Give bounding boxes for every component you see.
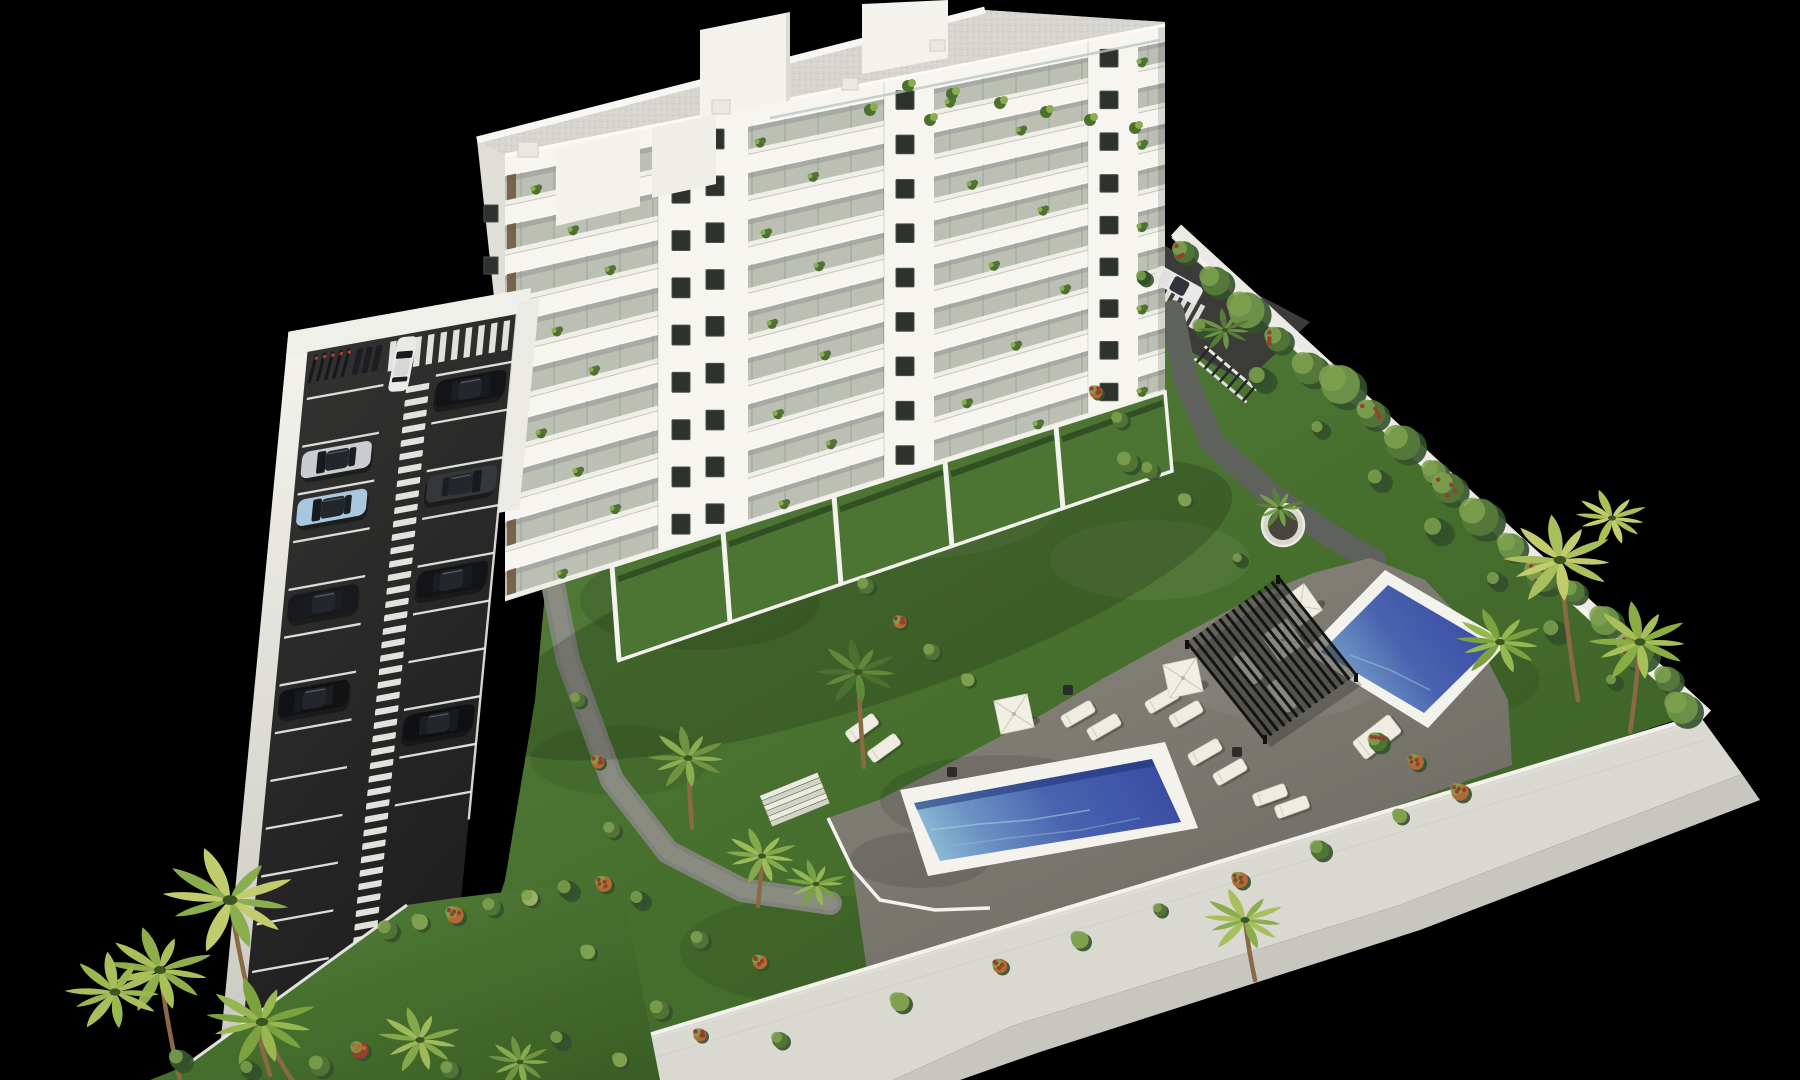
facade-window [896,135,914,154]
balcony-plant [1142,140,1148,146]
roof-vent [930,40,945,51]
facade-window [672,372,690,392]
balcony-plant [604,267,609,272]
side-table [1063,685,1073,695]
bush-flower [1409,760,1413,764]
bush [1310,840,1323,853]
balcony-plant [535,430,540,435]
balcony-plant [1142,387,1148,393]
palm-crown [853,669,862,675]
balcony-plant [594,365,600,371]
facade-window [1100,216,1118,234]
balcony-wood-wall [507,519,516,546]
bush [1319,364,1346,391]
balcony-plant [813,172,819,178]
bush-flower [1381,736,1385,740]
bush-flower [457,911,461,915]
balcony-plant [1142,222,1148,228]
bush-flower [591,756,595,760]
balcony-plant [1142,304,1148,310]
facade-window [896,179,914,198]
balcony-plant [562,569,568,575]
bush [690,931,702,943]
balcony-plant [1043,205,1049,211]
balcony-plant [572,468,577,473]
bush [1487,572,1499,584]
bush-flower [1373,735,1377,739]
roof-plant [870,103,878,111]
facade-window [896,313,914,332]
balcony-plant [772,411,777,416]
bush [1153,903,1162,912]
end-wall-window [484,257,498,274]
bush [240,1061,252,1073]
roof-penthouse [652,114,716,198]
balcony-plant [760,137,766,143]
facade-window [896,446,914,465]
balcony-plant [972,180,978,186]
bush [550,1031,562,1043]
bush [603,822,614,833]
balcony-wood-wall [507,174,516,201]
bush-flower [1267,336,1271,340]
balcony-plant [1037,207,1042,212]
palm-crown [684,755,693,761]
bush [580,945,590,955]
bush-flower [1377,736,1381,740]
balcony-plant [1010,342,1015,347]
bush-flower [1408,755,1412,759]
facade-window [1100,175,1118,193]
bush [612,1053,622,1063]
bush [1172,241,1187,256]
bush [1311,421,1322,432]
bush-flower [1174,244,1178,248]
bush-flower [1238,876,1242,880]
bush [771,1032,782,1043]
facade-window [706,410,724,430]
bush [1497,533,1515,551]
bush-flower [1375,411,1379,415]
balcony-plant [541,428,547,434]
palm-crown [154,966,166,974]
balcony-plant [578,467,584,473]
facade-window [706,363,724,383]
palm-crown [1277,506,1283,510]
balcony-plant [1136,388,1141,393]
pergola-post [1354,673,1358,682]
bush [1070,931,1082,943]
balcony-plant [961,400,966,405]
balcony-plant [1065,284,1071,290]
bush-flower [757,962,761,966]
bush-flower [352,1043,356,1047]
bush [309,1056,323,1070]
bush-flower [1449,483,1453,487]
balcony-plant [778,500,783,505]
balcony-plant [754,139,759,144]
balcony-plant [1038,419,1044,425]
bush-flower [1462,788,1466,792]
bush [961,673,970,682]
bush [521,890,532,901]
bush-flower [754,957,758,961]
bush [570,693,580,703]
bush-flower [597,760,601,764]
bush-flower [1267,330,1271,334]
bush-flower [1369,735,1373,739]
bush-flower [597,882,601,886]
palm-crown [516,1060,523,1065]
bush [1654,666,1671,683]
balcony-plant [825,350,831,356]
bush-flower [1360,404,1364,408]
roof-plant [1046,105,1054,113]
balcony-plant [615,504,621,510]
bush [1199,266,1219,286]
bush [1422,460,1438,476]
balcony-plant [588,367,593,372]
balcony-plant [760,230,765,235]
facade-window [672,514,690,534]
palm-crown [1634,638,1645,645]
bush-flower [1414,758,1418,762]
pergola-post [1185,640,1189,649]
bush-flower [997,966,1001,970]
bush [1111,412,1122,423]
palm-crown [1495,639,1505,645]
bush-flower [693,1029,697,1033]
facade-window [1100,91,1118,109]
facade-window [672,420,690,440]
balcony-plant [944,99,949,104]
bush [650,1000,663,1013]
facade-window [896,401,914,420]
palm-crown [758,853,766,858]
render-canvas [0,0,1800,1080]
roof-plant [930,113,938,121]
balcony-plant [807,173,812,178]
bush-flower [596,877,600,881]
balcony-plant [766,320,771,325]
bush-flower [899,620,903,624]
bush [1424,518,1441,535]
bush-flower [1377,415,1381,419]
bush-flower [602,880,606,884]
palm-crown [1554,556,1566,564]
bush [482,898,494,910]
bush-flower [893,616,897,620]
facade-window [706,270,724,290]
facade-window [1100,258,1118,276]
bush [1249,367,1265,383]
facade-window [1100,342,1118,360]
pergola-post [1276,575,1280,584]
facade-window [896,224,914,243]
balcony-plant [813,263,818,268]
pergola-post [1263,735,1267,744]
balcony-plant [567,227,572,232]
bush-flower [1095,390,1099,394]
bush [890,992,903,1005]
balcony-plant [1059,286,1064,291]
bush [630,891,642,903]
roof-plant [908,79,916,87]
balcony-plant [573,225,579,231]
facade-window [1100,133,1118,151]
bush-flower [699,1033,703,1037]
side-table [1232,747,1242,757]
bush [1233,553,1242,562]
bush [1432,472,1453,493]
balcony-plant [1032,421,1037,426]
bush [1264,327,1281,344]
bush-flower [598,757,602,761]
bush-flower [1239,880,1243,884]
balcony-plant [825,441,830,446]
palm-crown [1608,515,1616,520]
palm-crown [813,882,820,886]
facade-window [1100,300,1118,318]
bush-flower [1436,477,1440,481]
facade-window [896,268,914,287]
balcony-plant [1142,57,1148,63]
bush-flower [1453,488,1457,492]
bush-flower [603,884,607,888]
bush [1227,291,1252,316]
bush [440,1061,452,1073]
bush-flower [1233,878,1237,882]
bush [1664,692,1686,714]
bush [558,880,571,893]
balcony-plant [551,328,556,333]
balcony-plant [766,228,772,234]
facade-window [706,457,724,477]
bush-flower [1452,785,1456,789]
palm-crown [110,988,121,995]
roof-plant [1135,121,1143,129]
facade-window [672,325,690,345]
balcony-plant [988,262,993,267]
palm-crown [223,895,238,905]
balcony-plant [1021,125,1027,131]
bush-flower [447,908,451,912]
bush [857,578,868,589]
balcony-plant [556,570,561,575]
balcony-plant [772,319,778,325]
bush [1117,452,1131,466]
balcony-plant [831,439,837,445]
balcony-plant [1136,141,1141,146]
roof-plant [1090,113,1098,121]
roof-vent [518,142,538,157]
bush [1543,620,1558,635]
balcony-plant [994,261,1000,267]
balcony-plant [819,352,824,357]
balcony-plant [1015,127,1020,132]
facade-window [672,467,690,487]
balcony-plant [1136,223,1141,228]
roof-vent [712,100,730,114]
bush [1292,352,1314,374]
balcony-plant [1136,306,1141,311]
balcony-plant [1136,59,1141,64]
bush-flower [355,1047,359,1051]
bush-flower [1180,253,1184,257]
architectural-render: Aerial 3D architectural rendering on a b… [0,0,1800,1080]
bush-flower [1455,789,1459,793]
balcony-plant [610,265,616,271]
balcony-plant [778,409,784,415]
bush-flower [1445,494,1449,498]
palm-crown [256,1018,268,1026]
palm-crown [1222,328,1228,332]
bush [1357,399,1376,418]
roof-vent [842,78,858,90]
bush [1136,271,1146,281]
side-table [947,767,957,777]
bush [1178,493,1187,502]
facade-right-shade [1158,24,1165,394]
car-windshield [396,351,413,359]
balcony-plant [967,398,973,404]
balcony-plant [819,261,825,267]
balcony-wood-wall [507,223,516,250]
facade-window [706,223,724,243]
balcony-plant [609,505,614,510]
bush [411,914,422,925]
bush [1459,498,1485,524]
bush [1368,470,1382,484]
bush [378,920,391,933]
palm-crown [1241,917,1250,923]
facade-window [706,504,724,524]
balcony-plant [536,184,542,190]
bush-flower [900,617,904,621]
end-wall-window [484,205,498,222]
balcony-plant [530,186,535,191]
bush-flower [1089,386,1093,390]
bush-flower [1096,387,1100,391]
roof-core-shade [786,12,790,102]
facade-window [896,357,914,376]
bush-flower [362,1046,366,1050]
balcony-plant [557,326,563,332]
balcony-wood-wall [507,568,516,596]
facade-window [706,317,724,337]
palm-crown [415,1037,424,1043]
bush-flower [1415,762,1419,766]
bush-flower [1232,873,1236,877]
bush [923,644,934,655]
facade-window [672,231,690,251]
roof-plant [952,87,960,95]
bush [1384,425,1408,449]
balcony-plant [784,499,790,505]
bush-flower [700,1030,704,1034]
bush-flower [994,961,998,965]
bush [1141,462,1152,473]
facade-window [672,278,690,298]
bush-flower [1373,407,1377,411]
balcony-plant [966,181,971,186]
bush [1392,809,1402,819]
roof-plant [1000,96,1008,104]
bush-flower [450,912,454,916]
balcony-plant [1016,341,1022,347]
bush [169,1050,183,1064]
